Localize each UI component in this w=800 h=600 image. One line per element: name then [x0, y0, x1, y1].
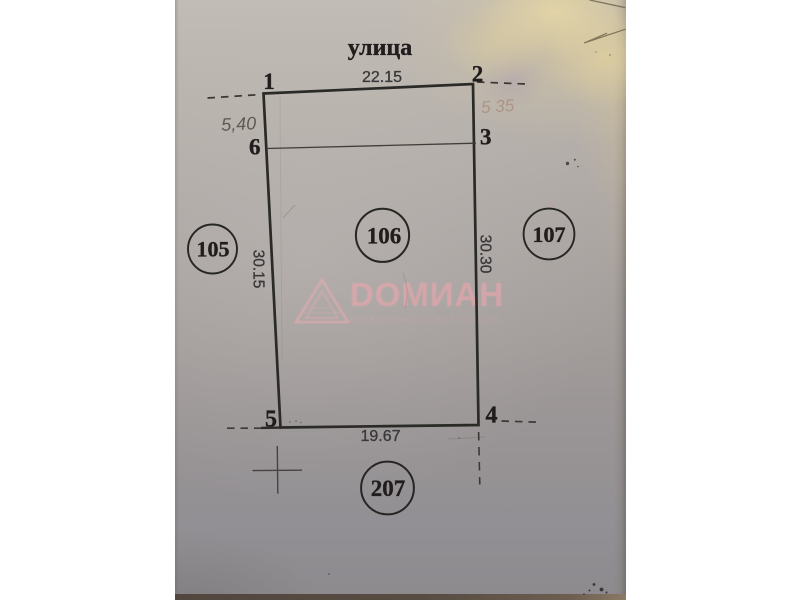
svg-text:5: 5 — [265, 407, 277, 433]
svg-text:DОМИАН: DОМИАН — [350, 276, 504, 313]
svg-text:4: 4 — [486, 403, 498, 429]
svg-text:5,40: 5,40 — [221, 113, 257, 135]
svg-text:19.67: 19.67 — [360, 428, 400, 445]
svg-text:106: 106 — [367, 224, 402, 249]
svg-text:105: 105 — [197, 237, 230, 262]
svg-text:2: 2 — [472, 62, 484, 87]
svg-text:5 35: 5 35 — [480, 96, 515, 117]
svg-text:1: 1 — [263, 69, 275, 94]
svg-text:30.30: 30.30 — [476, 235, 493, 274]
svg-text:207: 207 — [371, 476, 406, 501]
svg-text:6: 6 — [249, 135, 261, 160]
svg-text:22.15: 22.15 — [362, 69, 402, 86]
svg-text:30.15: 30.15 — [249, 250, 266, 289]
svg-text:3: 3 — [480, 125, 492, 150]
svg-text:107: 107 — [533, 222, 566, 247]
svg-text:улица: улица — [348, 35, 413, 61]
